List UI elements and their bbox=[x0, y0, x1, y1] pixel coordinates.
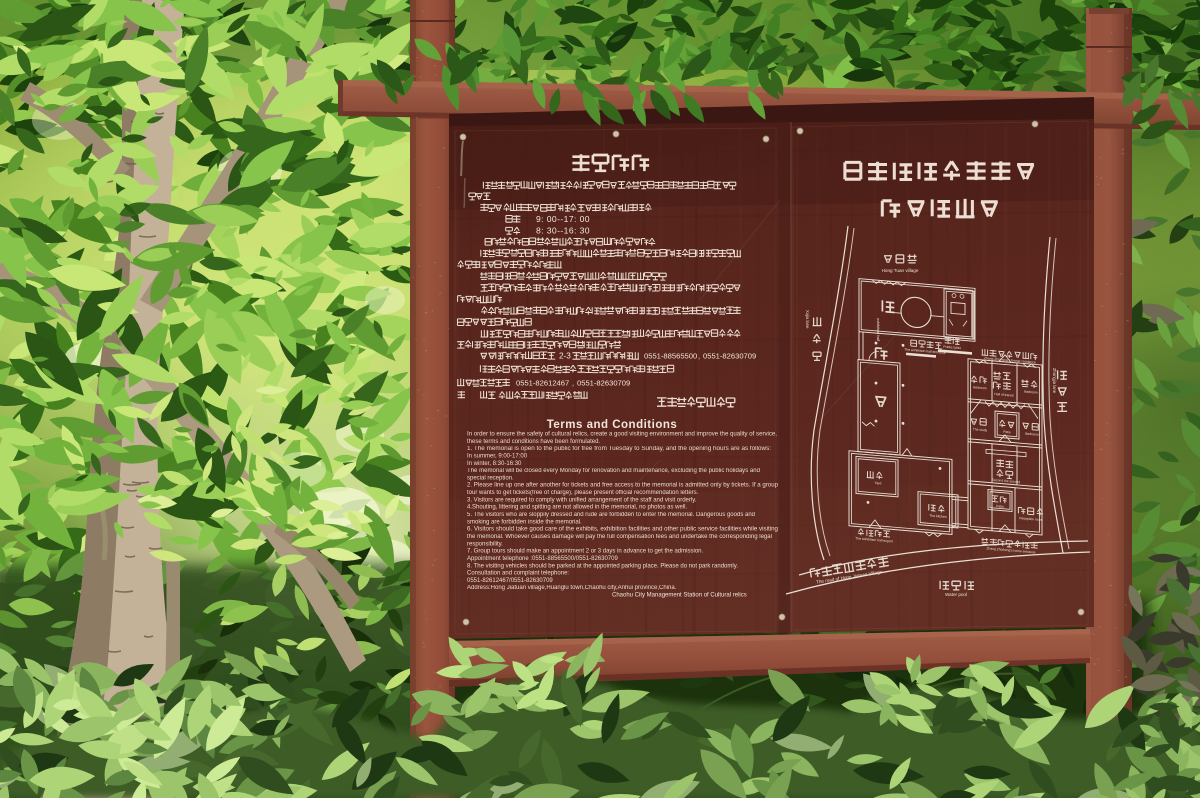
svg-text:4.Shouting, littering and spit: 4.Shouting, littering and spitting are n… bbox=[467, 505, 687, 511]
svg-text:3. Visitors are required to co: 3. Visitors are required to comply with … bbox=[467, 497, 697, 503]
svg-text:0551-82630709: 0551-82630709 bbox=[703, 352, 756, 361]
svg-text:9: 00--17: 00: 9: 00--17: 00 bbox=[536, 214, 590, 224]
svg-text:5. The visitors who are sloppi: 5. The visitors who are sloppily dressed… bbox=[467, 512, 755, 518]
svg-text:In winter, 8:30-16:30: In winter, 8:30-16:30 bbox=[467, 461, 522, 467]
svg-text:In order to ensure the safety: In order to ensure the safety of cultura… bbox=[467, 432, 777, 438]
svg-text:smoking are forbidden inside t: smoking are forbidden inside the memoria… bbox=[467, 519, 582, 525]
svg-text:special reception.: special reception. bbox=[467, 475, 514, 481]
svg-text:Water pool: Water pool bbox=[945, 592, 967, 597]
svg-text:,: , bbox=[698, 352, 700, 361]
svg-text:exhibition hall: exhibition hall bbox=[876, 318, 880, 341]
svg-text:Patio: Patio bbox=[996, 504, 1004, 509]
svg-text:2. Please line up one after an: 2. Please line up one after another for … bbox=[467, 483, 779, 489]
svg-text:7. Group tours should make an: 7. Group tours should make an appointmen… bbox=[467, 549, 703, 555]
svg-text:8: 30--16: 30: 8: 30--16: 30 bbox=[536, 226, 590, 236]
svg-text:0551-88565500: 0551-88565500 bbox=[644, 352, 697, 361]
svg-text:Xujia lane: Xujia lane bbox=[805, 310, 810, 329]
svg-text:these terms and conditions hav: these terms and conditions have been for… bbox=[467, 439, 600, 445]
svg-text:0551-82612467: 0551-82612467 bbox=[516, 379, 569, 388]
svg-text:Patio: Patio bbox=[1003, 430, 1011, 435]
svg-text:2-3: 2-3 bbox=[559, 352, 571, 361]
svg-text:Hong Tuan village: Hong Tuan village bbox=[882, 268, 919, 273]
svg-text:Appointment telephone :0551-88: Appointment telephone :0551-88565500/055… bbox=[467, 556, 618, 562]
svg-text:Zhangjia lane: Zhangjia lane bbox=[1052, 368, 1057, 394]
svg-text:The memorial will be closed ev: The memorial will be closed every Monday… bbox=[467, 468, 760, 474]
svg-text:0551-82630709: 0551-82630709 bbox=[577, 379, 630, 388]
svg-text:the memorial. Whoever causes d: the memorial. Whoever causes damage will… bbox=[467, 534, 772, 540]
svg-text:8. The visiting vehicles shoul: 8. The visiting vehicles should be parke… bbox=[467, 563, 738, 569]
svg-text:6. Visitors should take good c: 6. Visitors should take good care of the… bbox=[467, 527, 778, 533]
svg-text:In summer, 9:00-17:00: In summer, 9:00-17:00 bbox=[467, 454, 528, 460]
svg-text:Terms and Conditions: Terms and Conditions bbox=[547, 419, 678, 431]
svg-text:Address:Hong Jiatuan village,H: Address:Hong Jiatuan village,Huanglu tow… bbox=[467, 585, 677, 591]
svg-text:Consultation and complaint tel: Consultation and complaint telephone: bbox=[467, 571, 569, 577]
svg-text:Chaohu City Management Station: Chaohu City Management Station of Cultur… bbox=[612, 593, 747, 599]
svg-text:responsibility.: responsibility. bbox=[467, 541, 503, 547]
svg-text:1. The memorial is open to the: 1. The memorial is open to the public fo… bbox=[467, 446, 771, 452]
svg-text:0551-82612467/0551-82630709: 0551-82612467/0551-82630709 bbox=[467, 578, 553, 584]
svg-text:,: , bbox=[572, 379, 574, 388]
svg-text:tour wants to get tickets(free: tour wants to get tickets(free of charge… bbox=[467, 490, 699, 496]
svg-text:Yard: Yard bbox=[875, 481, 882, 486]
